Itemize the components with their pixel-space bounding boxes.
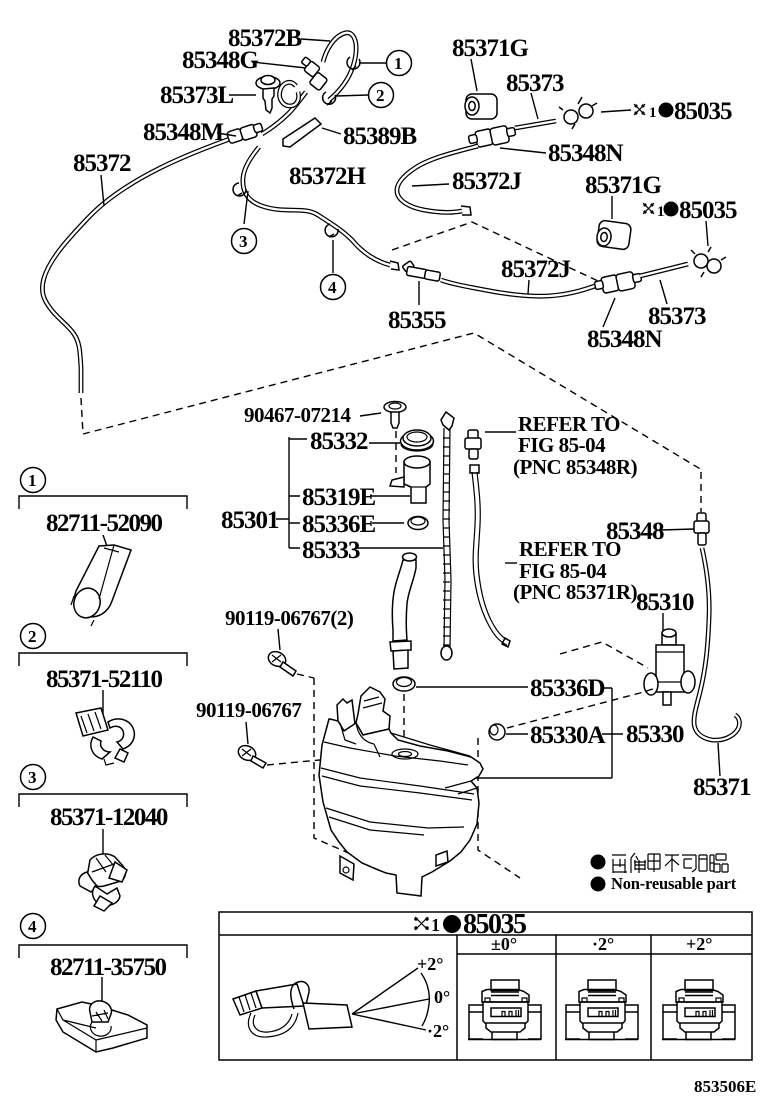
svg-text:85310: 85310	[636, 589, 694, 616]
svg-text:2: 2	[376, 86, 385, 105]
svg-text:85035: 85035	[674, 98, 732, 125]
svg-text:1: 1	[657, 204, 665, 220]
svg-text:85373: 85373	[506, 70, 564, 97]
svg-text:1: 1	[649, 105, 657, 121]
svg-text:85373L: 85373L	[160, 82, 234, 109]
svg-text:853506E: 853506E	[694, 1077, 756, 1096]
svg-text:3: 3	[239, 232, 248, 251]
svg-text:85371-12040: 85371-12040	[50, 804, 168, 831]
svg-text:(PNC 85371R): (PNC 85371R)	[513, 580, 638, 604]
svg-text:85333: 85333	[302, 537, 360, 564]
svg-text:85371: 85371	[693, 774, 751, 801]
svg-text:85330A: 85330A	[530, 722, 606, 749]
svg-text:90119-06767: 90119-06767	[196, 698, 301, 722]
svg-text:85372J: 85372J	[452, 168, 522, 195]
svg-text:85371G: 85371G	[452, 35, 529, 62]
svg-text:85348N: 85348N	[548, 140, 624, 167]
svg-text:85355: 85355	[388, 307, 446, 334]
svg-text:85373: 85373	[648, 303, 706, 330]
svg-text:85371G: 85371G	[585, 172, 662, 199]
svg-text:82711-52090: 82711-52090	[46, 510, 162, 537]
svg-text:85348: 85348	[606, 518, 664, 545]
svg-text:85332: 85332	[310, 428, 368, 455]
svg-text:85371-52110: 85371-52110	[46, 666, 162, 693]
svg-text:3: 3	[28, 768, 37, 787]
svg-text:85330: 85330	[626, 721, 684, 748]
svg-text:4: 4	[28, 917, 37, 936]
svg-text:90467-07214: 90467-07214	[244, 403, 351, 427]
svg-text:85348N: 85348N	[587, 326, 663, 353]
svg-text:0°: 0°	[434, 987, 450, 1007]
svg-text:85035: 85035	[679, 197, 737, 224]
svg-text:85336E: 85336E	[302, 511, 376, 538]
svg-text:±0°: ±0°	[491, 934, 517, 954]
svg-text:85319E: 85319E	[302, 484, 376, 511]
svg-text:85301: 85301	[221, 507, 279, 534]
svg-text:(PNC 85348R): (PNC 85348R)	[513, 455, 638, 479]
svg-text:1: 1	[28, 471, 37, 490]
svg-text:FIG 85-04: FIG 85-04	[518, 433, 606, 457]
svg-text:Non-reusable part: Non-reusable part	[611, 874, 737, 893]
svg-text:85348G: 85348G	[182, 47, 259, 74]
svg-text:85336D: 85336D	[530, 675, 605, 702]
svg-text:85372H: 85372H	[289, 163, 367, 190]
svg-text:85372J: 85372J	[501, 256, 571, 283]
svg-text:85348M: 85348M	[143, 119, 224, 146]
svg-text:4: 4	[328, 278, 337, 297]
svg-text:+2°: +2°	[686, 934, 712, 954]
svg-text:·2°: ·2°	[592, 934, 614, 954]
svg-text:2: 2	[28, 627, 37, 646]
svg-text:1: 1	[394, 54, 403, 73]
svg-text:82711-35750: 82711-35750	[50, 954, 166, 981]
svg-text:·2°: ·2°	[427, 1021, 449, 1041]
svg-text:1: 1	[431, 915, 440, 935]
svg-text:85372: 85372	[73, 150, 131, 177]
svg-text:90119-06767(2): 90119-06767(2)	[225, 606, 354, 630]
svg-text:85389B: 85389B	[343, 123, 417, 150]
svg-text:+2°: +2°	[417, 954, 443, 974]
